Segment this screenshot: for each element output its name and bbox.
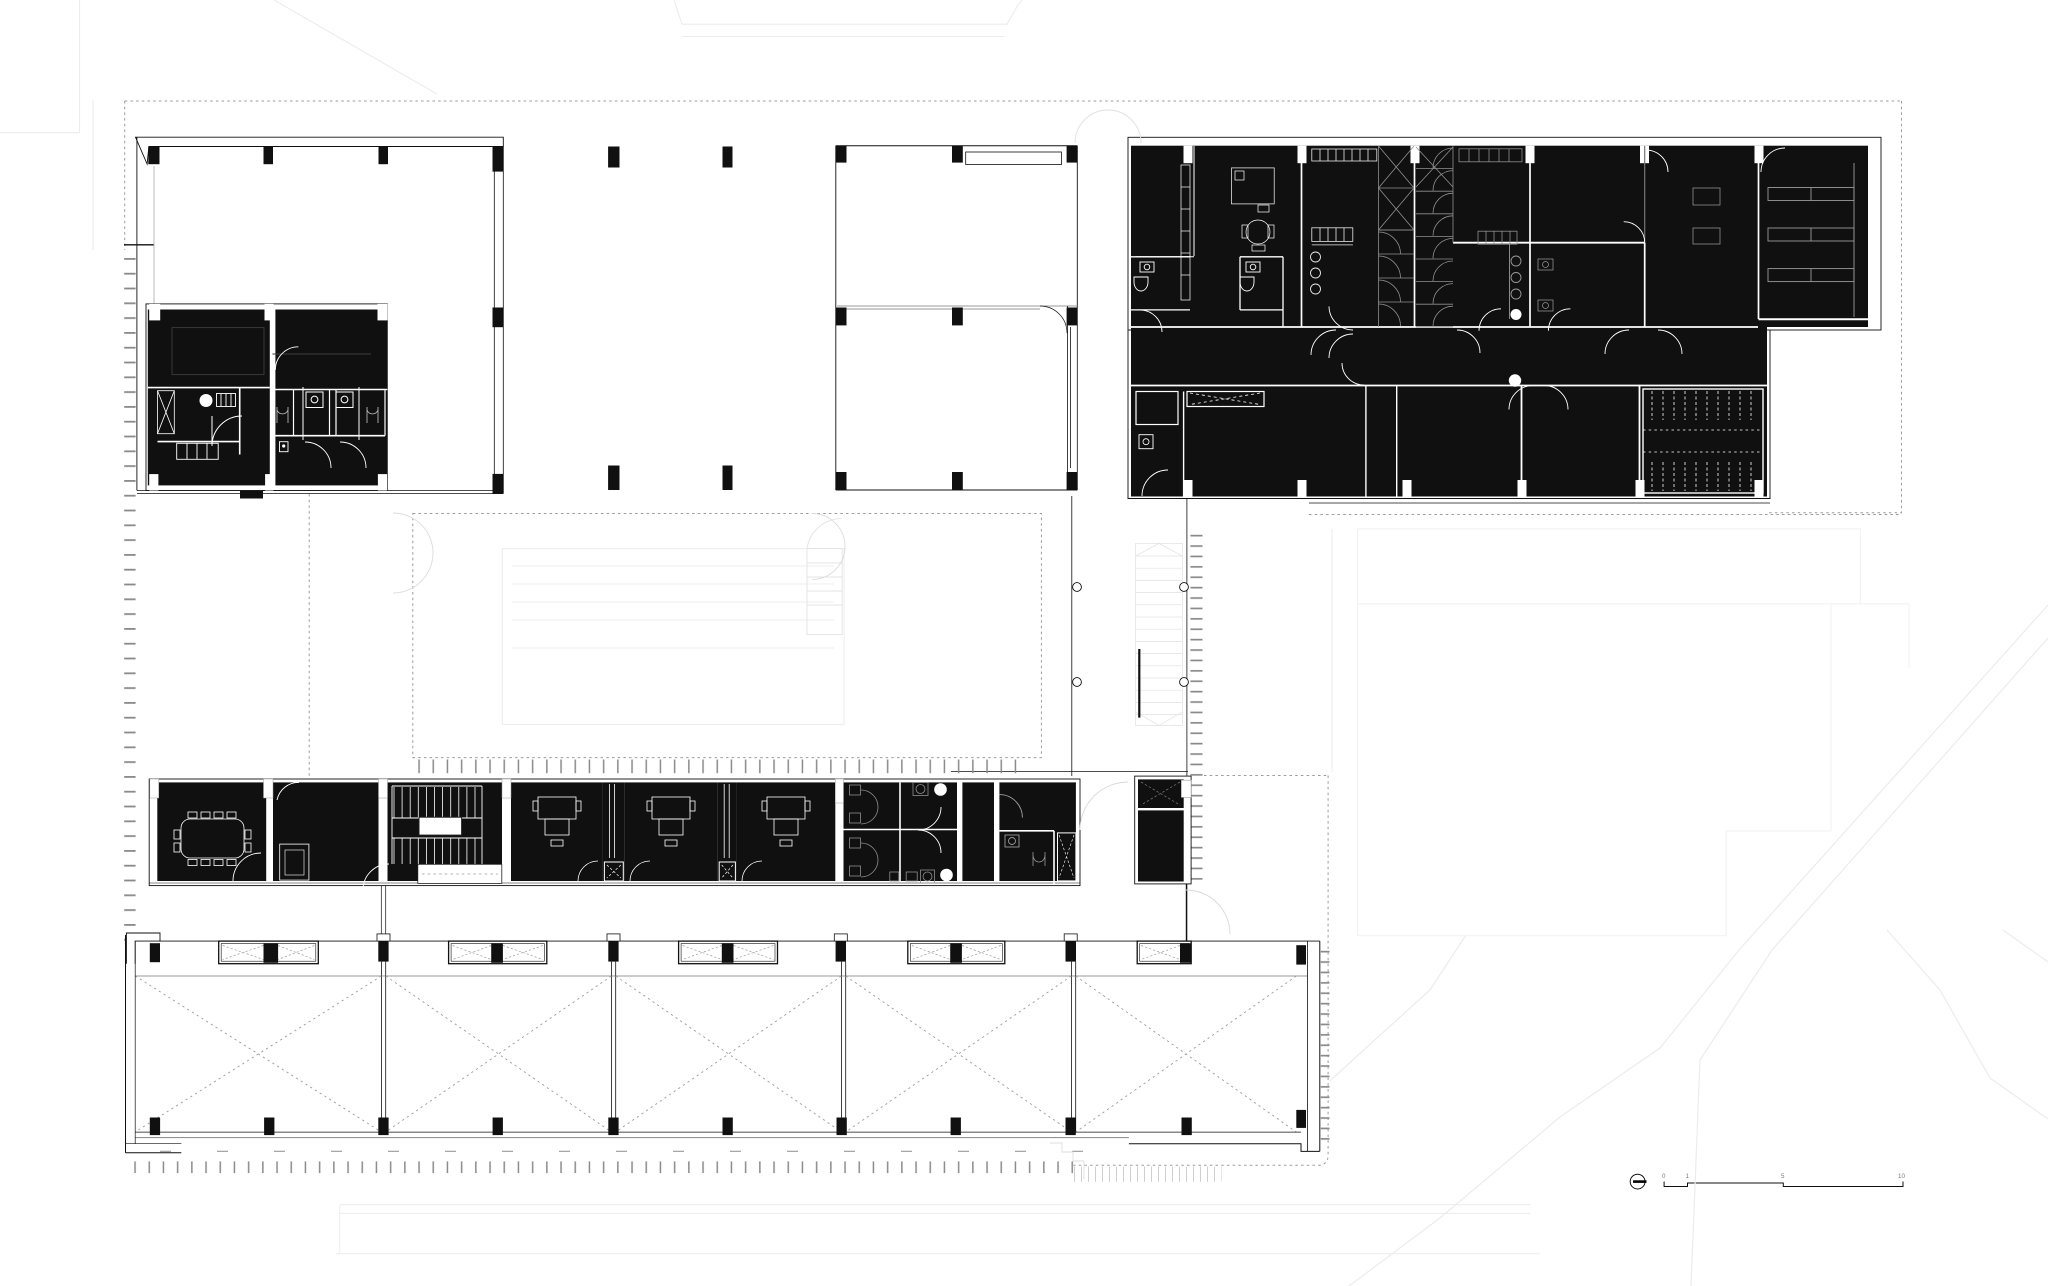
svg-text:0: 0	[1662, 1173, 1666, 1180]
svg-text:5: 5	[1781, 1173, 1785, 1180]
svg-text:10: 10	[1898, 1173, 1905, 1180]
svg-text:1: 1	[1686, 1173, 1690, 1180]
